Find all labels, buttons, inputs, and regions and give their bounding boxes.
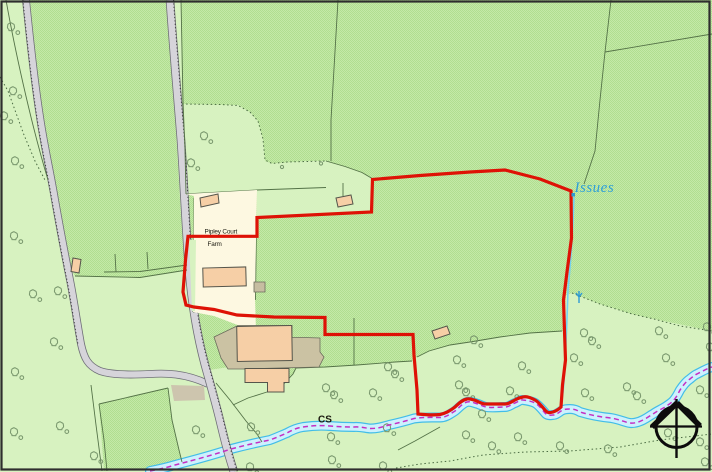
svg-text:CS: CS bbox=[318, 415, 332, 426]
svg-text:Pipley Court: Pipley Court bbox=[205, 229, 238, 236]
svg-text:Farm: Farm bbox=[208, 241, 222, 248]
svg-text:Issues: Issues bbox=[574, 180, 615, 196]
